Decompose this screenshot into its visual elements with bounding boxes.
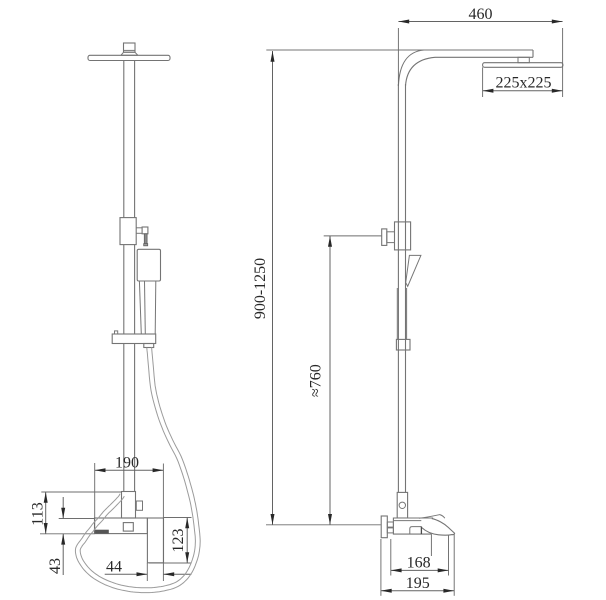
svg-text:113: 113 — [30, 502, 47, 525]
svg-text:460: 460 — [469, 6, 493, 23]
svg-text:900-1250: 900-1250 — [252, 258, 269, 319]
svg-text:225x225: 225x225 — [496, 74, 552, 91]
svg-text:44: 44 — [106, 558, 122, 575]
svg-text:168: 168 — [407, 554, 431, 571]
svg-text:43: 43 — [47, 558, 64, 574]
svg-text:190: 190 — [115, 455, 139, 472]
svg-text:≈760: ≈760 — [308, 364, 325, 397]
svg-text:123: 123 — [170, 529, 187, 553]
svg-text:195: 195 — [406, 575, 430, 592]
